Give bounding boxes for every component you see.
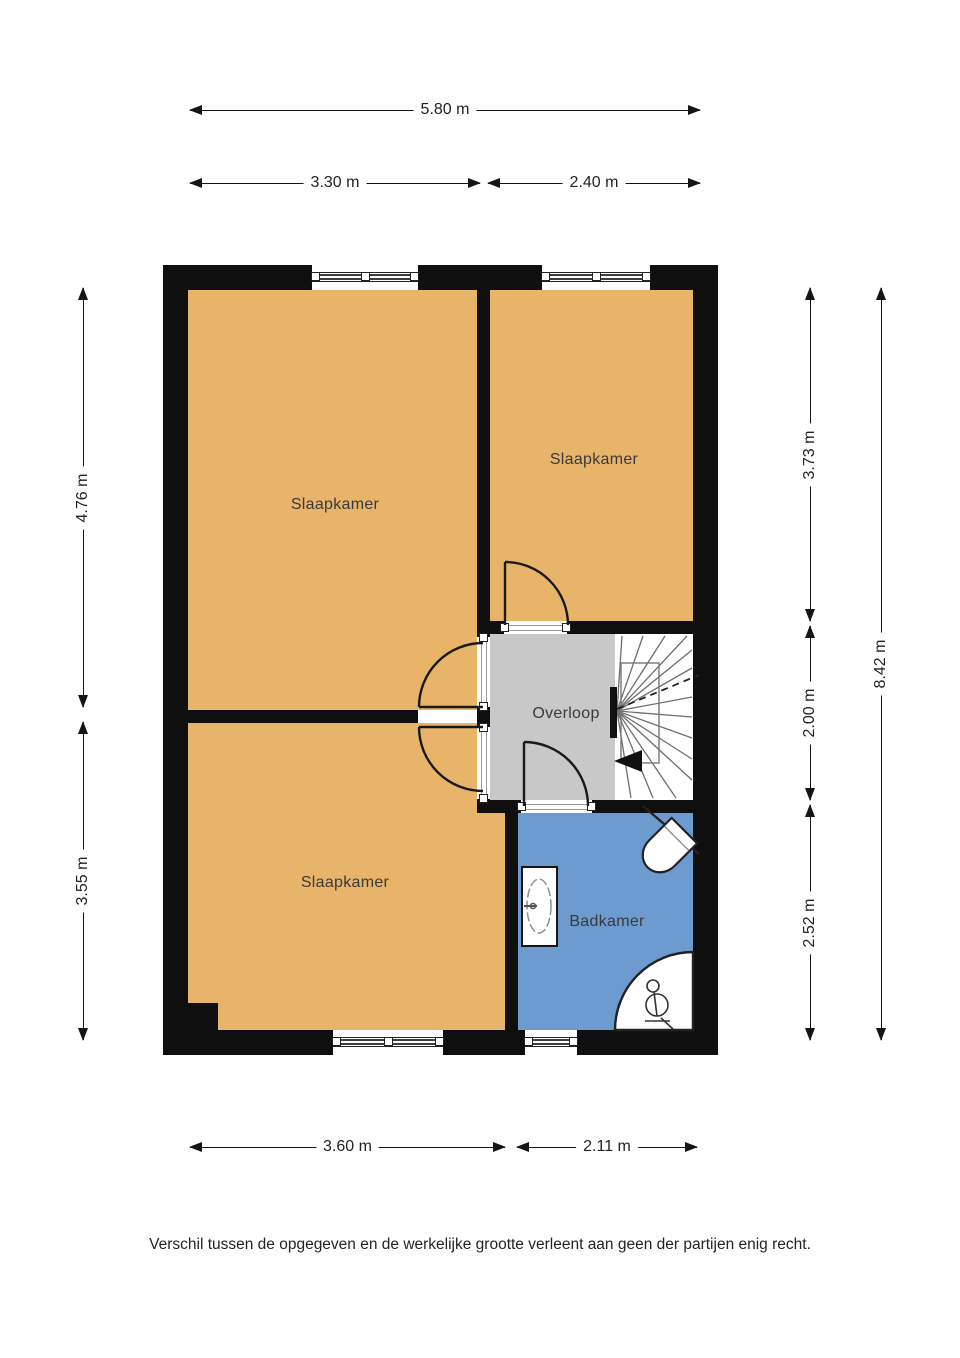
arrow-down-icon: [78, 1028, 88, 1041]
dim-label: 2.52 m: [801, 891, 819, 954]
wall-h2-bedrooms: [188, 710, 418, 723]
arrow-left-icon: [487, 178, 500, 188]
window-post: [642, 272, 651, 281]
dim-label: 2.11 m: [576, 1138, 638, 1156]
dim-label: 4.76 m: [74, 466, 92, 529]
threshold-cap: [562, 623, 571, 632]
dim-label: 2.40 m: [563, 174, 626, 192]
threshold-door-slaapkamer3: [477, 727, 490, 799]
window-post: [524, 1037, 533, 1046]
window-slaapkamer2: [542, 265, 650, 290]
dim-right-lower: 2.52 m: [800, 805, 820, 1040]
label-slaapkamer-2: Slaapkamer: [550, 451, 638, 469]
dim-bottom-right: 2.11 m: [517, 1137, 697, 1157]
dim-bottom-left: 3.60 m: [190, 1137, 505, 1157]
threshold-lines: [521, 804, 592, 810]
threshold-cap: [517, 802, 526, 811]
dim-label: 2.00 m: [801, 682, 819, 745]
threshold-door-badkamer: [521, 800, 592, 813]
threshold-door-slaapkamer2: [504, 621, 567, 634]
threshold-lines: [481, 727, 487, 799]
arrow-right-icon: [688, 178, 701, 188]
arrow-down-icon: [805, 788, 815, 801]
window-slaapkamer1: [312, 265, 418, 290]
window-post: [361, 272, 370, 281]
label-slaapkamer-1: Slaapkamer: [291, 496, 379, 514]
window-post: [569, 1037, 578, 1046]
arrow-left-icon: [189, 105, 202, 115]
label-badkamer: Badkamer: [569, 913, 644, 931]
window-slaapkamer3: [333, 1030, 443, 1055]
arrow-left-icon: [189, 178, 202, 188]
window-post: [410, 272, 419, 281]
window-post: [332, 1037, 341, 1046]
arrow-right-icon: [685, 1142, 698, 1152]
dim-label: 5.80 m: [414, 101, 477, 119]
threshold-lines: [481, 637, 487, 707]
dim-right-middle: 2.00 m: [800, 626, 820, 800]
arrow-right-icon: [688, 105, 701, 115]
arrow-up-icon: [78, 721, 88, 734]
arrow-down-icon: [78, 695, 88, 708]
dim-top-right: 2.40 m: [488, 173, 700, 193]
wall-right: [693, 265, 718, 1055]
arrow-up-icon: [805, 804, 815, 817]
label-slaapkamer-3: Slaapkamer: [301, 874, 389, 892]
threshold-cap: [479, 702, 488, 711]
arrow-up-icon: [805, 625, 815, 638]
window-post: [541, 272, 550, 281]
threshold-cap: [479, 633, 488, 642]
arrow-right-icon: [493, 1142, 506, 1152]
disclaimer-text: Verschil tussen de opgegeven en de werke…: [0, 1236, 960, 1254]
dim-label: 3.30 m: [304, 174, 367, 192]
dim-label: 3.55 m: [74, 850, 92, 913]
threshold-cap: [479, 723, 488, 732]
arrow-up-icon: [805, 287, 815, 300]
arrow-left-icon: [189, 1142, 202, 1152]
window-post: [311, 272, 320, 281]
arrow-up-icon: [876, 287, 886, 300]
dim-total-width: 5.80 m: [190, 100, 700, 120]
window-post: [592, 272, 601, 281]
threshold-cap: [479, 794, 488, 803]
label-overloop: Overloop: [532, 705, 599, 723]
dim-label: 3.73 m: [801, 423, 819, 486]
dim-label: 3.60 m: [316, 1138, 379, 1156]
dim-label: 8.42 m: [872, 633, 890, 696]
dim-total-height: 8.42 m: [871, 288, 891, 1040]
dim-right-upper: 3.73 m: [800, 288, 820, 621]
room-stairs-area: [615, 634, 693, 800]
arrow-down-icon: [805, 609, 815, 622]
arrow-down-icon: [805, 1028, 815, 1041]
window-badkamer: [525, 1030, 577, 1055]
dim-left-lower: 3.55 m: [73, 722, 93, 1040]
arrow-down-icon: [876, 1028, 886, 1041]
dim-top-left: 3.30 m: [190, 173, 480, 193]
window-post: [435, 1037, 444, 1046]
wall-v2-bathroom: [505, 800, 518, 1030]
threshold-door-slaapkamer1: [477, 637, 490, 707]
arrow-left-icon: [516, 1142, 529, 1152]
arrow-up-icon: [78, 287, 88, 300]
threshold-cap: [587, 802, 596, 811]
arrow-right-icon: [468, 178, 481, 188]
wall-left: [163, 265, 188, 1055]
floorplan-page: Slaapkamer Slaapkamer Slaapkamer Overloo…: [0, 0, 960, 1358]
threshold-cap: [500, 623, 509, 632]
window-post: [384, 1037, 393, 1046]
dim-left-upper: 4.76 m: [73, 288, 93, 707]
wall-notch-bottom-left: [163, 1003, 218, 1055]
threshold-lines: [504, 625, 567, 631]
sink-counter: [521, 866, 558, 947]
